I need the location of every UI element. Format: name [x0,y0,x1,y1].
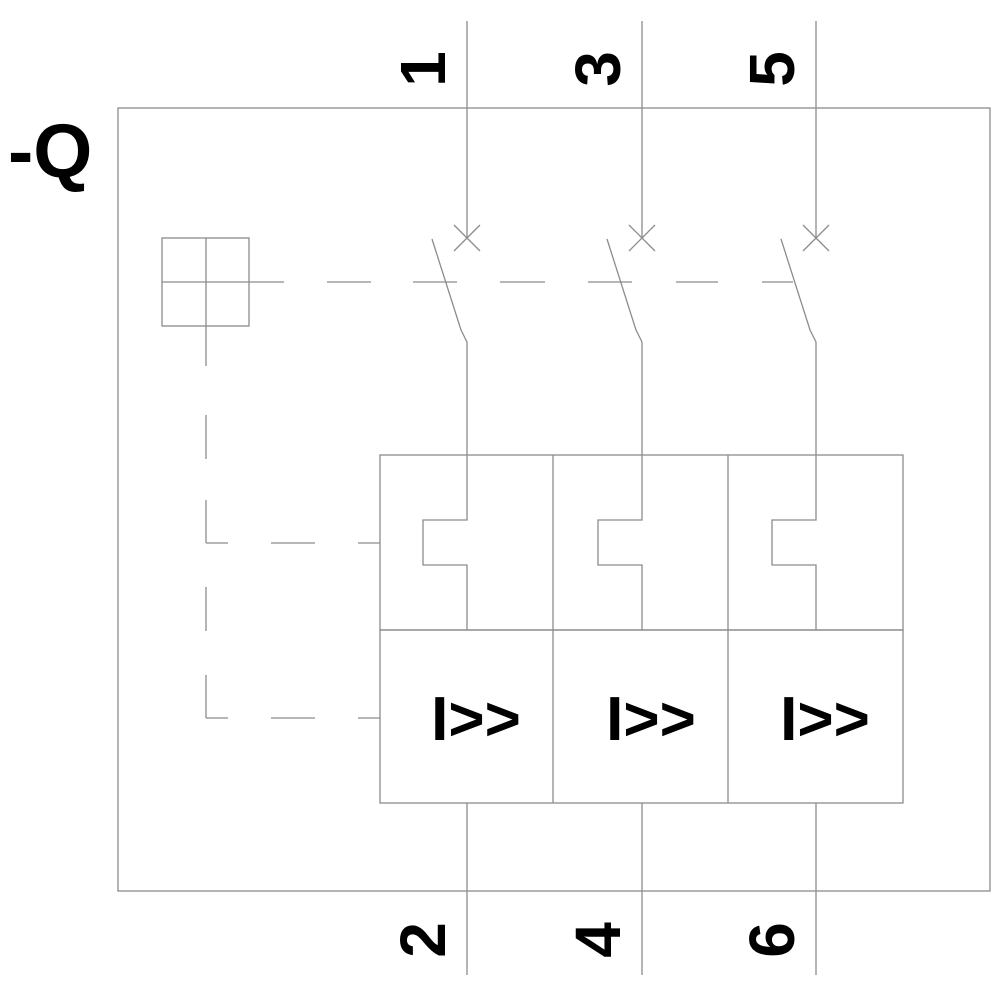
terminal-label-bottom: 6 [736,922,808,958]
magnetic-trip-label: I>> [780,685,870,754]
contact-blade [607,239,642,342]
conductor-thermal-notch [598,342,642,630]
magnetic-trip-label: I>> [606,685,696,754]
conductor-thermal-notch [772,342,816,630]
terminal-label-bottom: 4 [562,922,634,958]
actuator-symbol-icon [162,238,284,366]
terminal-label-top: 3 [562,51,634,87]
pole-3: 5 I>> 6 [736,21,870,975]
conductor-thermal-notch [423,342,467,630]
pole-1: 1 I>> 2 [387,21,521,975]
pole-2: 3 I>> 4 [562,21,696,975]
terminal-label-top: 5 [736,51,808,87]
terminal-label-top: 1 [387,51,459,87]
mechanical-linkage [206,282,793,718]
circuit-breaker-schematic: -Q 1 I>> 2 [0,0,1000,1000]
contact-blade [432,239,467,342]
device-label: -Q [8,109,92,194]
magnetic-trip-label: I>> [431,685,521,754]
device-outline [118,108,990,891]
contact-blade [781,239,816,342]
terminal-label-bottom: 2 [387,922,459,958]
schematic-drawing: -Q 1 I>> 2 [0,0,1000,1000]
